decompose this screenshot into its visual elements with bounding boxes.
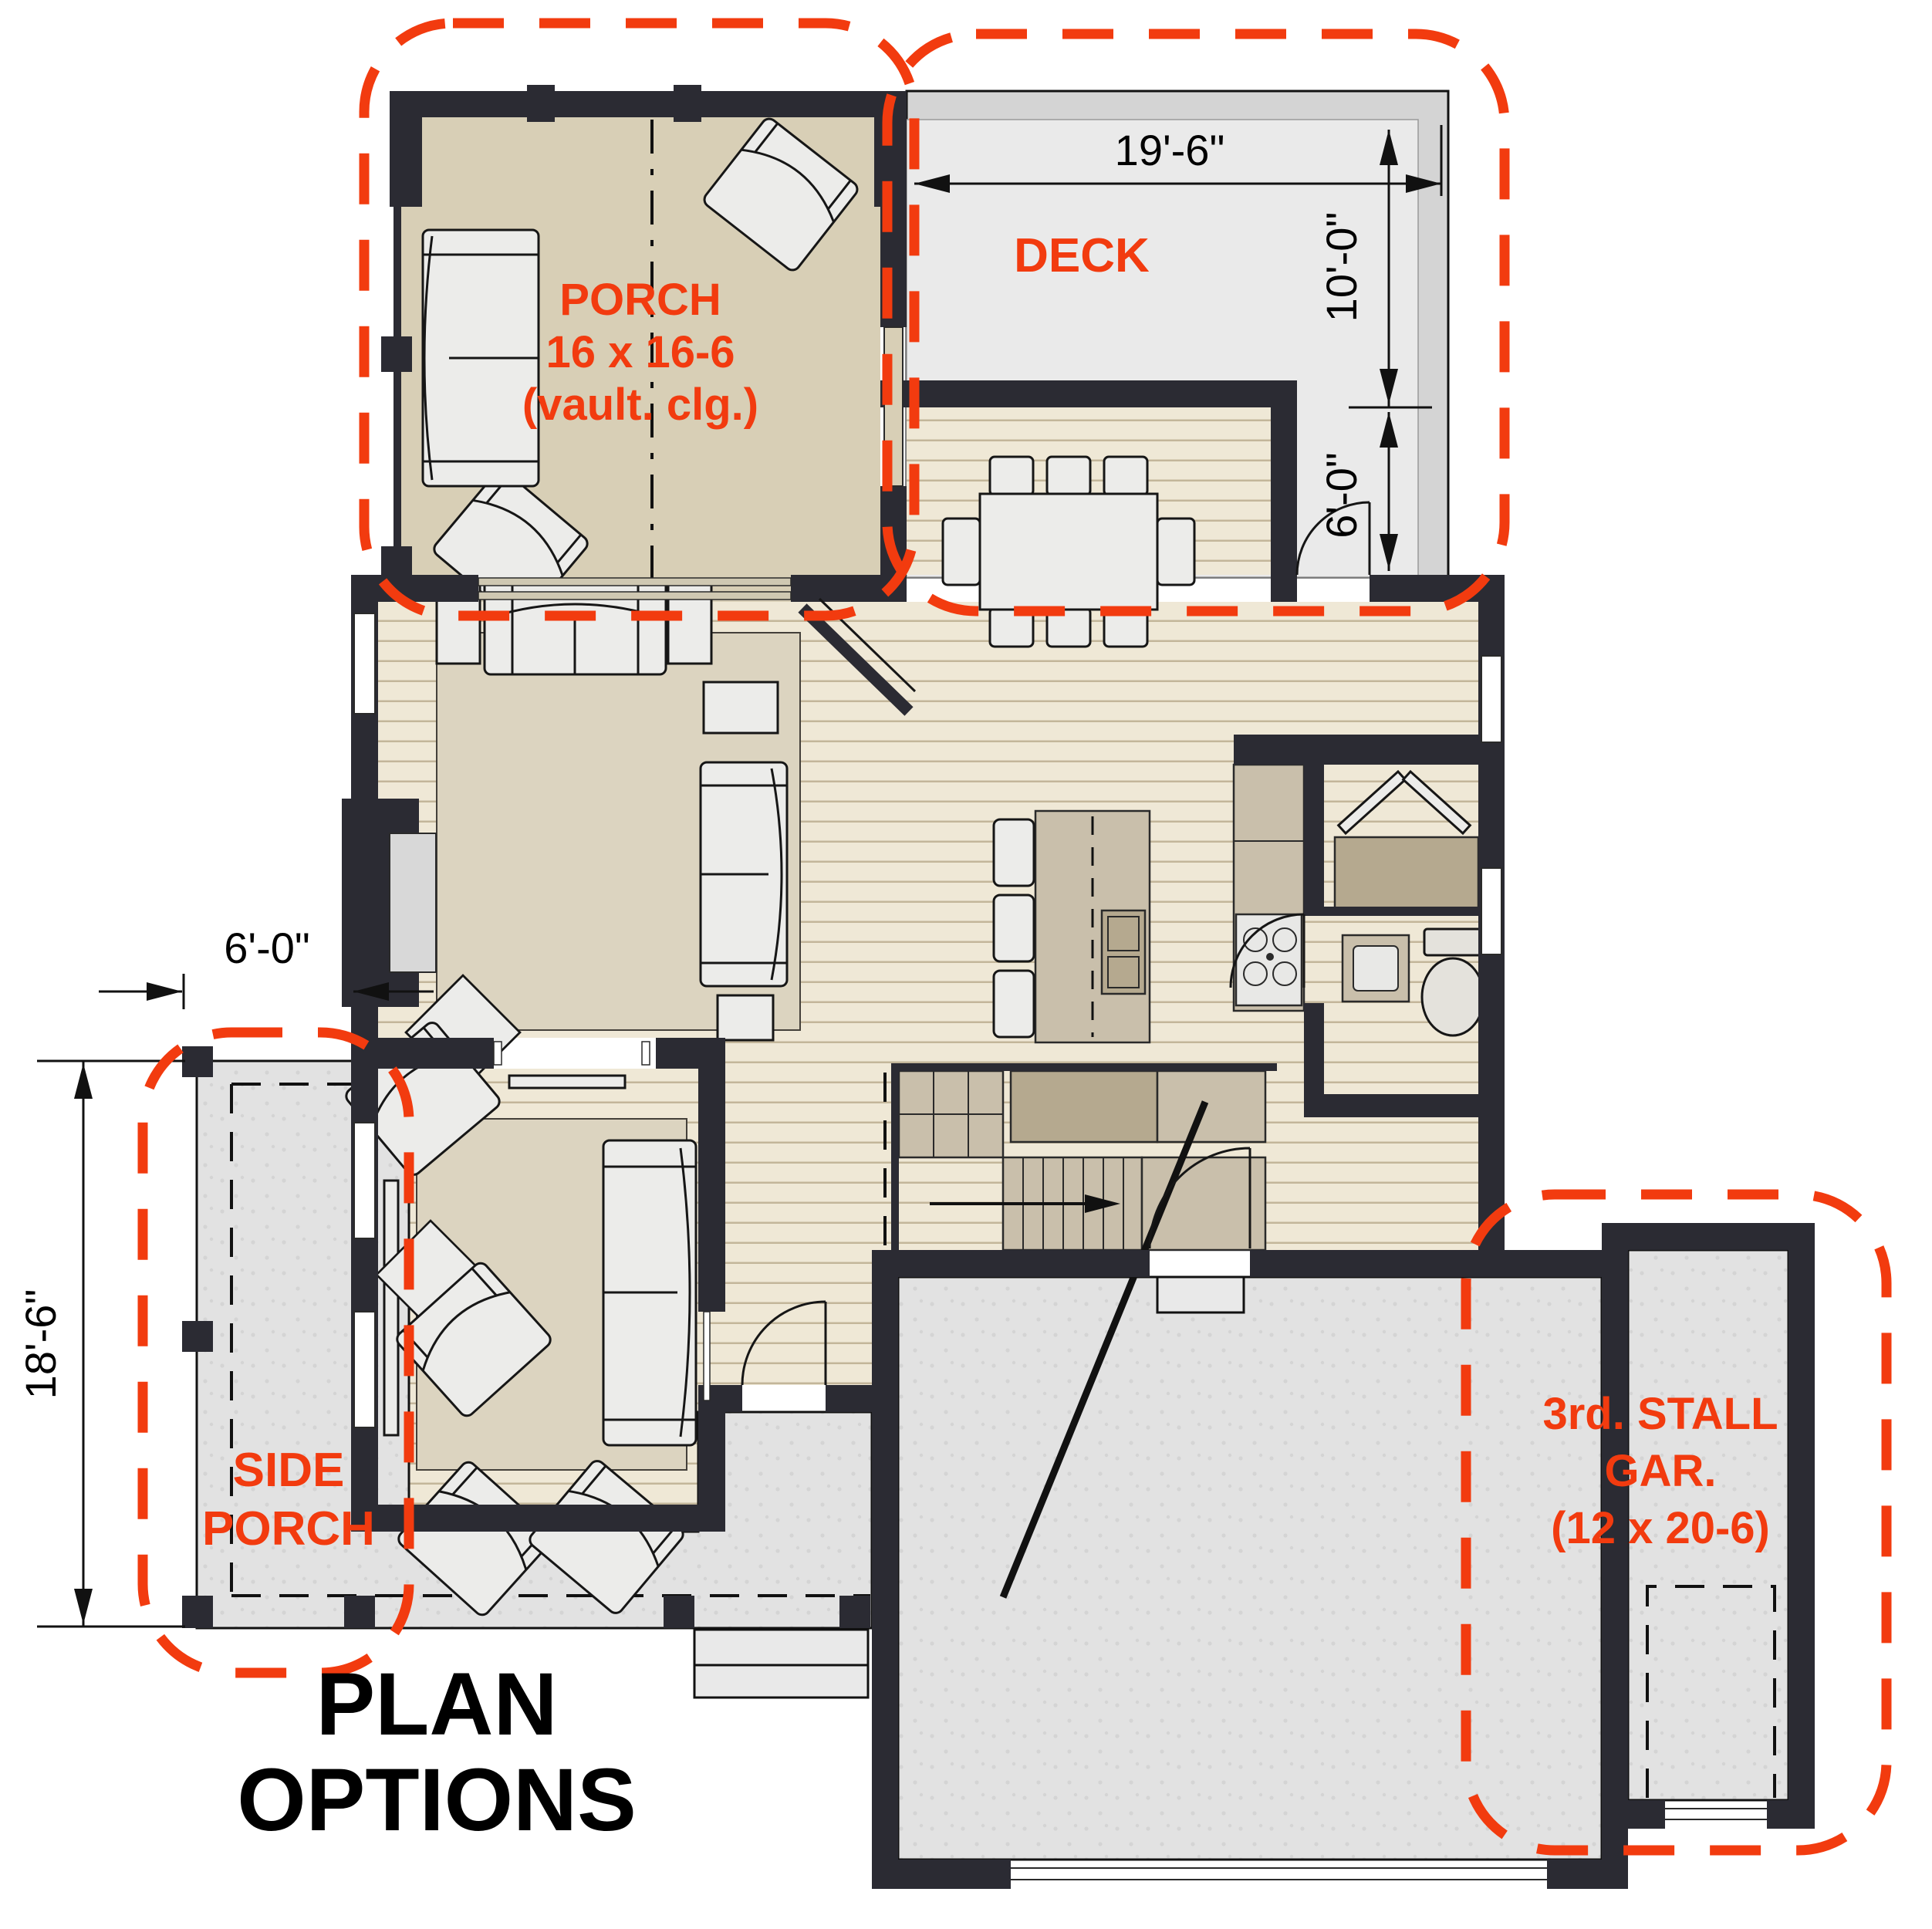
side-porch-label-1: SIDE — [233, 1444, 345, 1497]
loveseat-end-table — [704, 682, 778, 733]
den-window-1 — [354, 1123, 375, 1238]
stove — [1236, 914, 1302, 1005]
den-sofa — [603, 1140, 696, 1445]
left-wall-window — [354, 613, 375, 714]
porch-label-1: PORCH — [559, 275, 721, 325]
front-step-1 — [694, 1630, 868, 1665]
plan-title-line-1: PLAN — [316, 1655, 557, 1754]
deck-width-dim: 19'-6" — [1115, 126, 1225, 174]
stool-3 — [994, 971, 1034, 1037]
porch-label-3: (vault. clg.) — [522, 380, 758, 430]
island-appliance — [1102, 910, 1145, 994]
front-step-2 — [694, 1665, 868, 1698]
deck-label: DECK — [1014, 229, 1150, 282]
third-stall-label-3: (12 x 20-6) — [1551, 1503, 1770, 1553]
den-console — [384, 1181, 398, 1435]
deck-inset-dim: 6'-0" — [1317, 452, 1366, 539]
right-wall-window-1 — [1481, 656, 1501, 742]
dining-table — [980, 494, 1157, 610]
side-porch-label-2: PORCH — [202, 1502, 375, 1556]
ottoman — [718, 995, 773, 1040]
porch-slider-sill-1 — [478, 578, 791, 586]
entry-closet — [1157, 1071, 1265, 1142]
porch-slider-sill-2 — [478, 592, 791, 600]
deck-depth-dim: 10'-0" — [1317, 212, 1366, 323]
side-porch-depth-dim: 18'-6" — [16, 1289, 65, 1400]
floor-plan: 19'-6" 10'-0" 6'-0" 6'-0" 18'-6" PO — [0, 0, 1932, 1929]
fireplace-hearth — [390, 833, 436, 972]
porch-sofa — [423, 230, 539, 486]
stair-closet — [1011, 1071, 1157, 1142]
den-window-2 — [354, 1312, 375, 1427]
porch-label-2: 16 x 16-6 — [545, 327, 735, 377]
loveseat — [701, 762, 787, 986]
stool-1 — [994, 819, 1034, 886]
third-stall-label-1: 3rd. STALL — [1542, 1389, 1778, 1439]
den-wall-console — [509, 1076, 625, 1088]
right-wall-window-2 — [1481, 868, 1501, 954]
stool-2 — [994, 895, 1034, 961]
toilet — [1422, 929, 1484, 1035]
third-stall-label-2: GAR. — [1605, 1446, 1717, 1496]
garage-slab — [898, 1277, 1602, 1860]
bath-sink — [1343, 935, 1409, 1002]
floor-plan-page: 19'-6" 10'-0" 6'-0" 6'-0" 18'-6" PO — [0, 0, 1932, 1929]
garage-entry-step — [1157, 1277, 1244, 1312]
side-porch-offset-dim: 6'-0" — [224, 924, 310, 972]
plan-title-line-2: OPTIONS — [237, 1751, 637, 1850]
